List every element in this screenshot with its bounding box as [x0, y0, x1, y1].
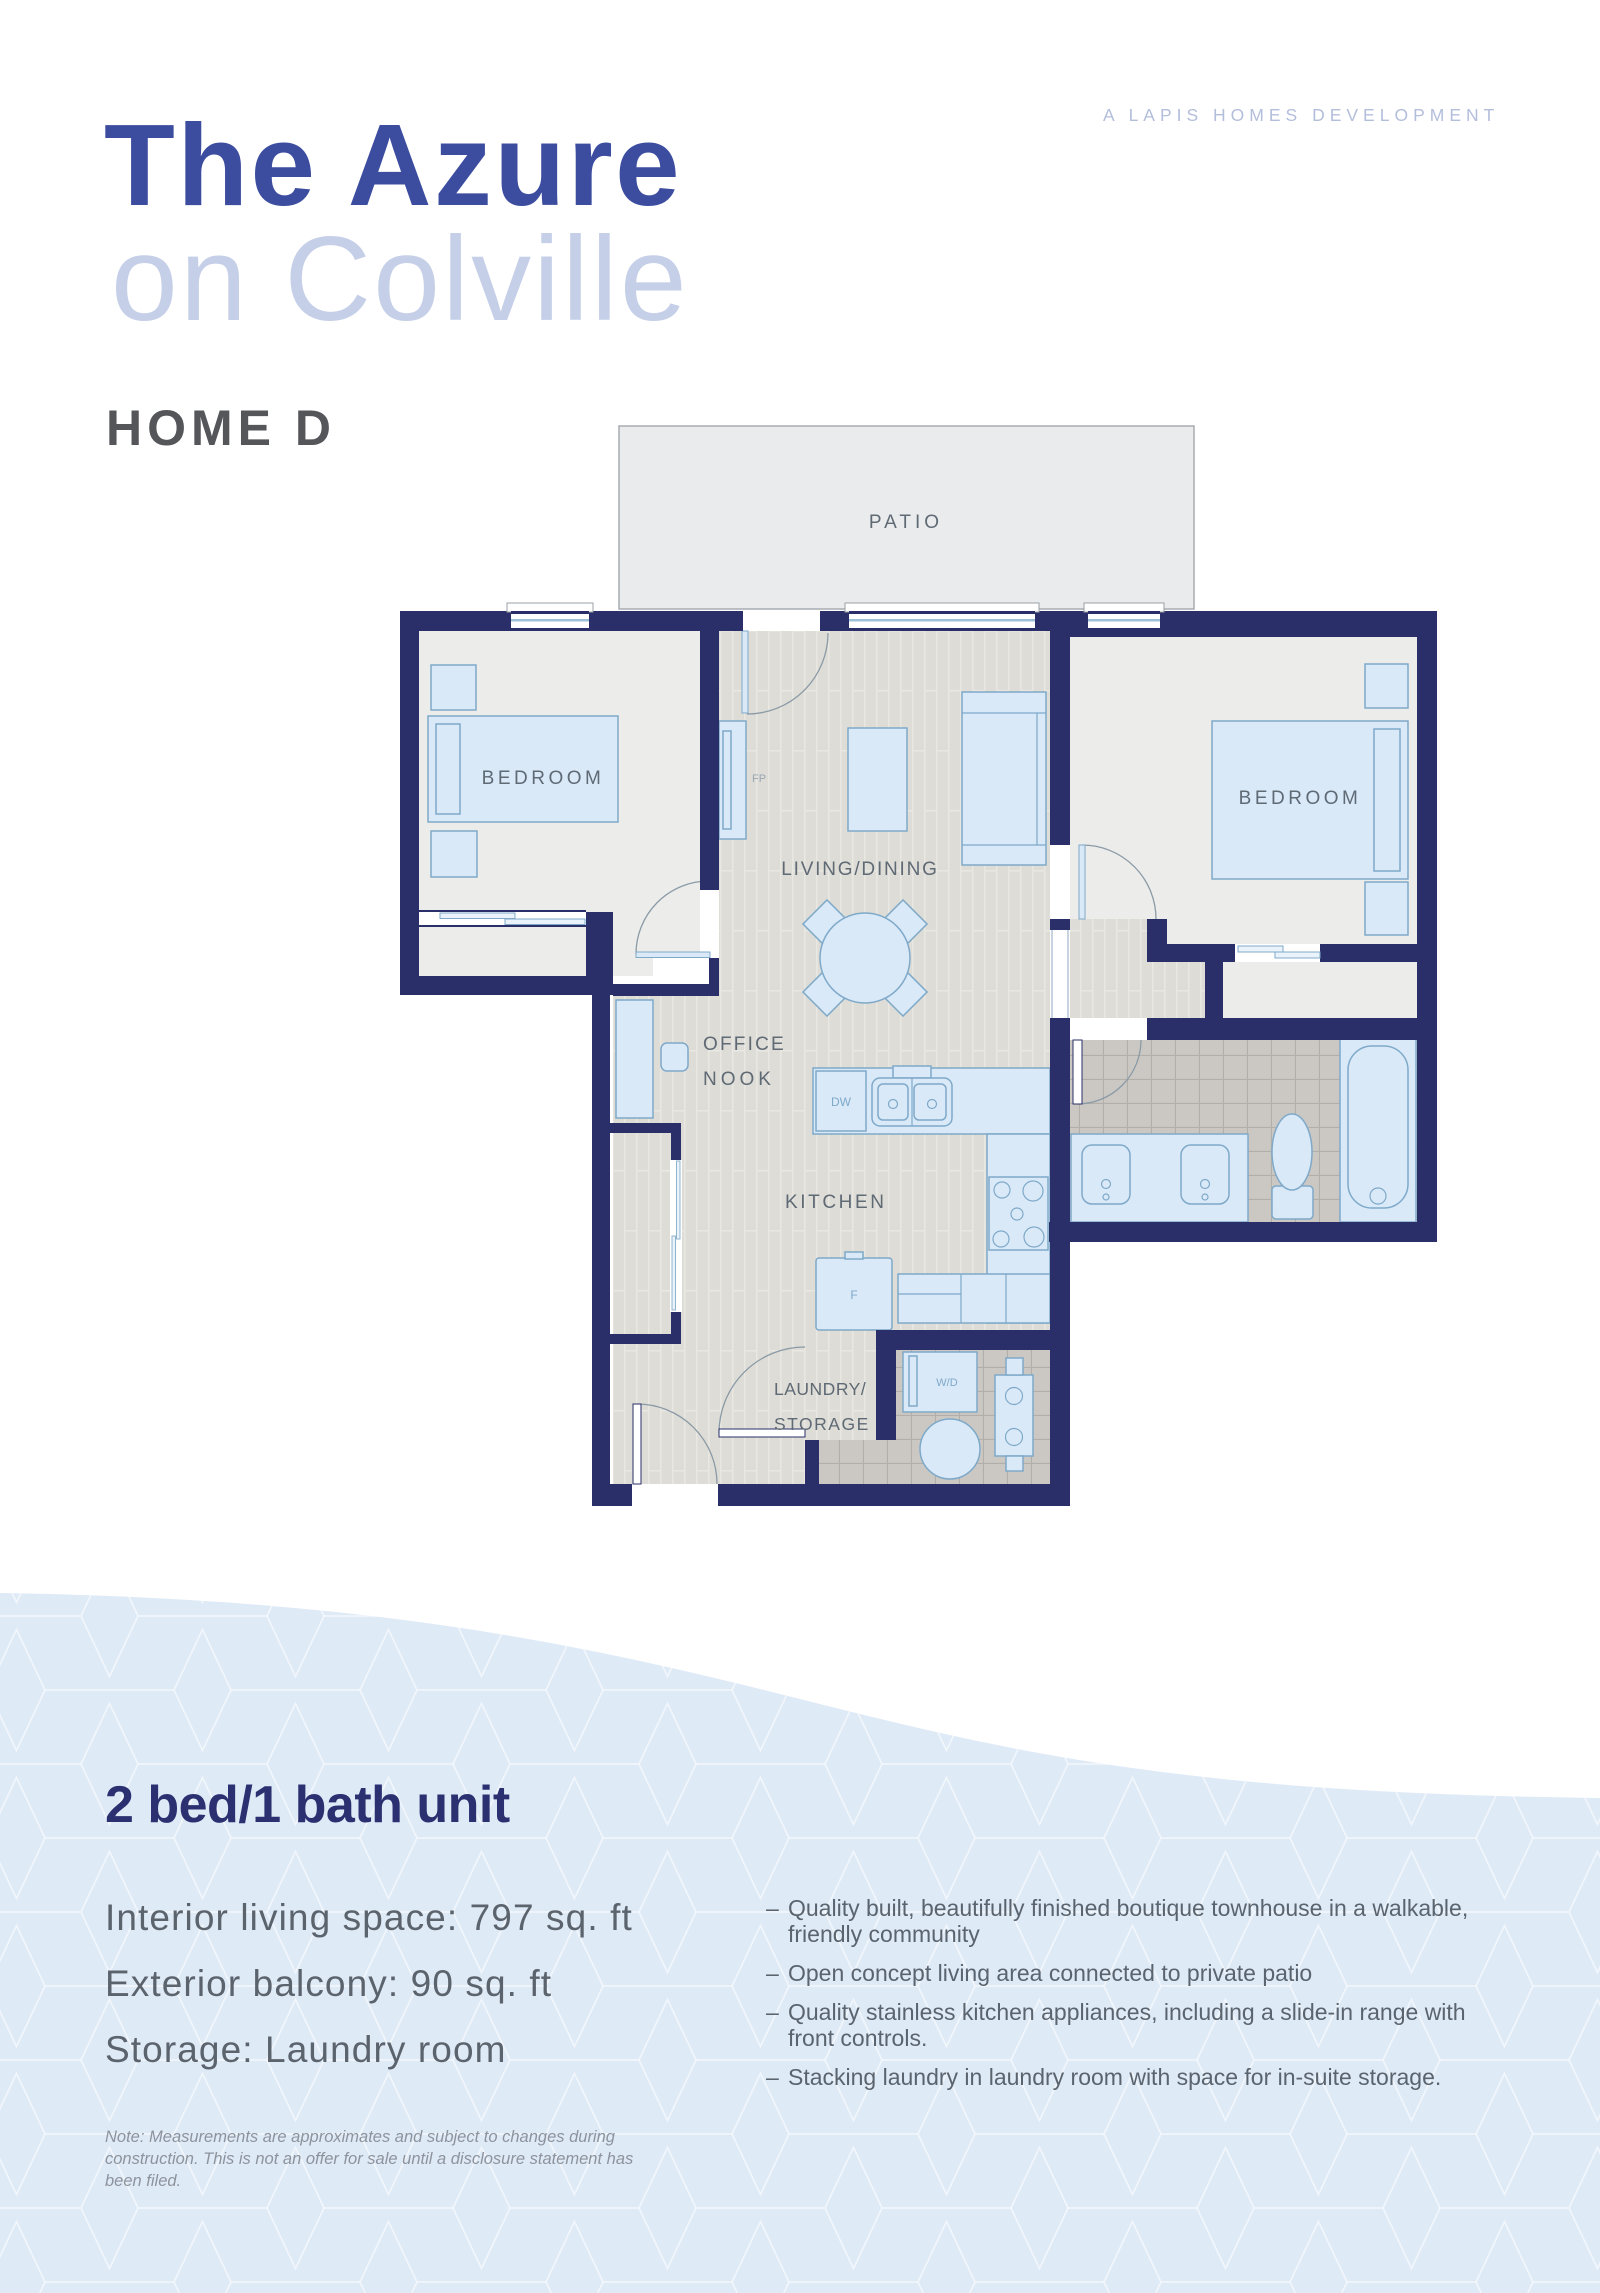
- svg-text:LAUNDRY/: LAUNDRY/: [774, 1379, 866, 1399]
- svg-text:BEDROOM: BEDROOM: [482, 768, 605, 789]
- svg-text:STORAGE: STORAGE: [774, 1414, 870, 1434]
- svg-text:F: F: [850, 1288, 857, 1302]
- svg-text:KITCHEN: KITCHEN: [785, 1192, 887, 1213]
- svg-text:W/D: W/D: [936, 1377, 957, 1389]
- svg-text:BEDROOM: BEDROOM: [1239, 788, 1362, 809]
- svg-text:PATIO: PATIO: [869, 512, 943, 533]
- svg-text:OFFICE: OFFICE: [703, 1034, 786, 1055]
- svg-text:FP: FP: [752, 773, 766, 785]
- svg-text:NOOK: NOOK: [703, 1069, 775, 1090]
- svg-text:DW: DW: [831, 1095, 852, 1109]
- svg-text:LIVING/DINING: LIVING/DINING: [781, 859, 938, 880]
